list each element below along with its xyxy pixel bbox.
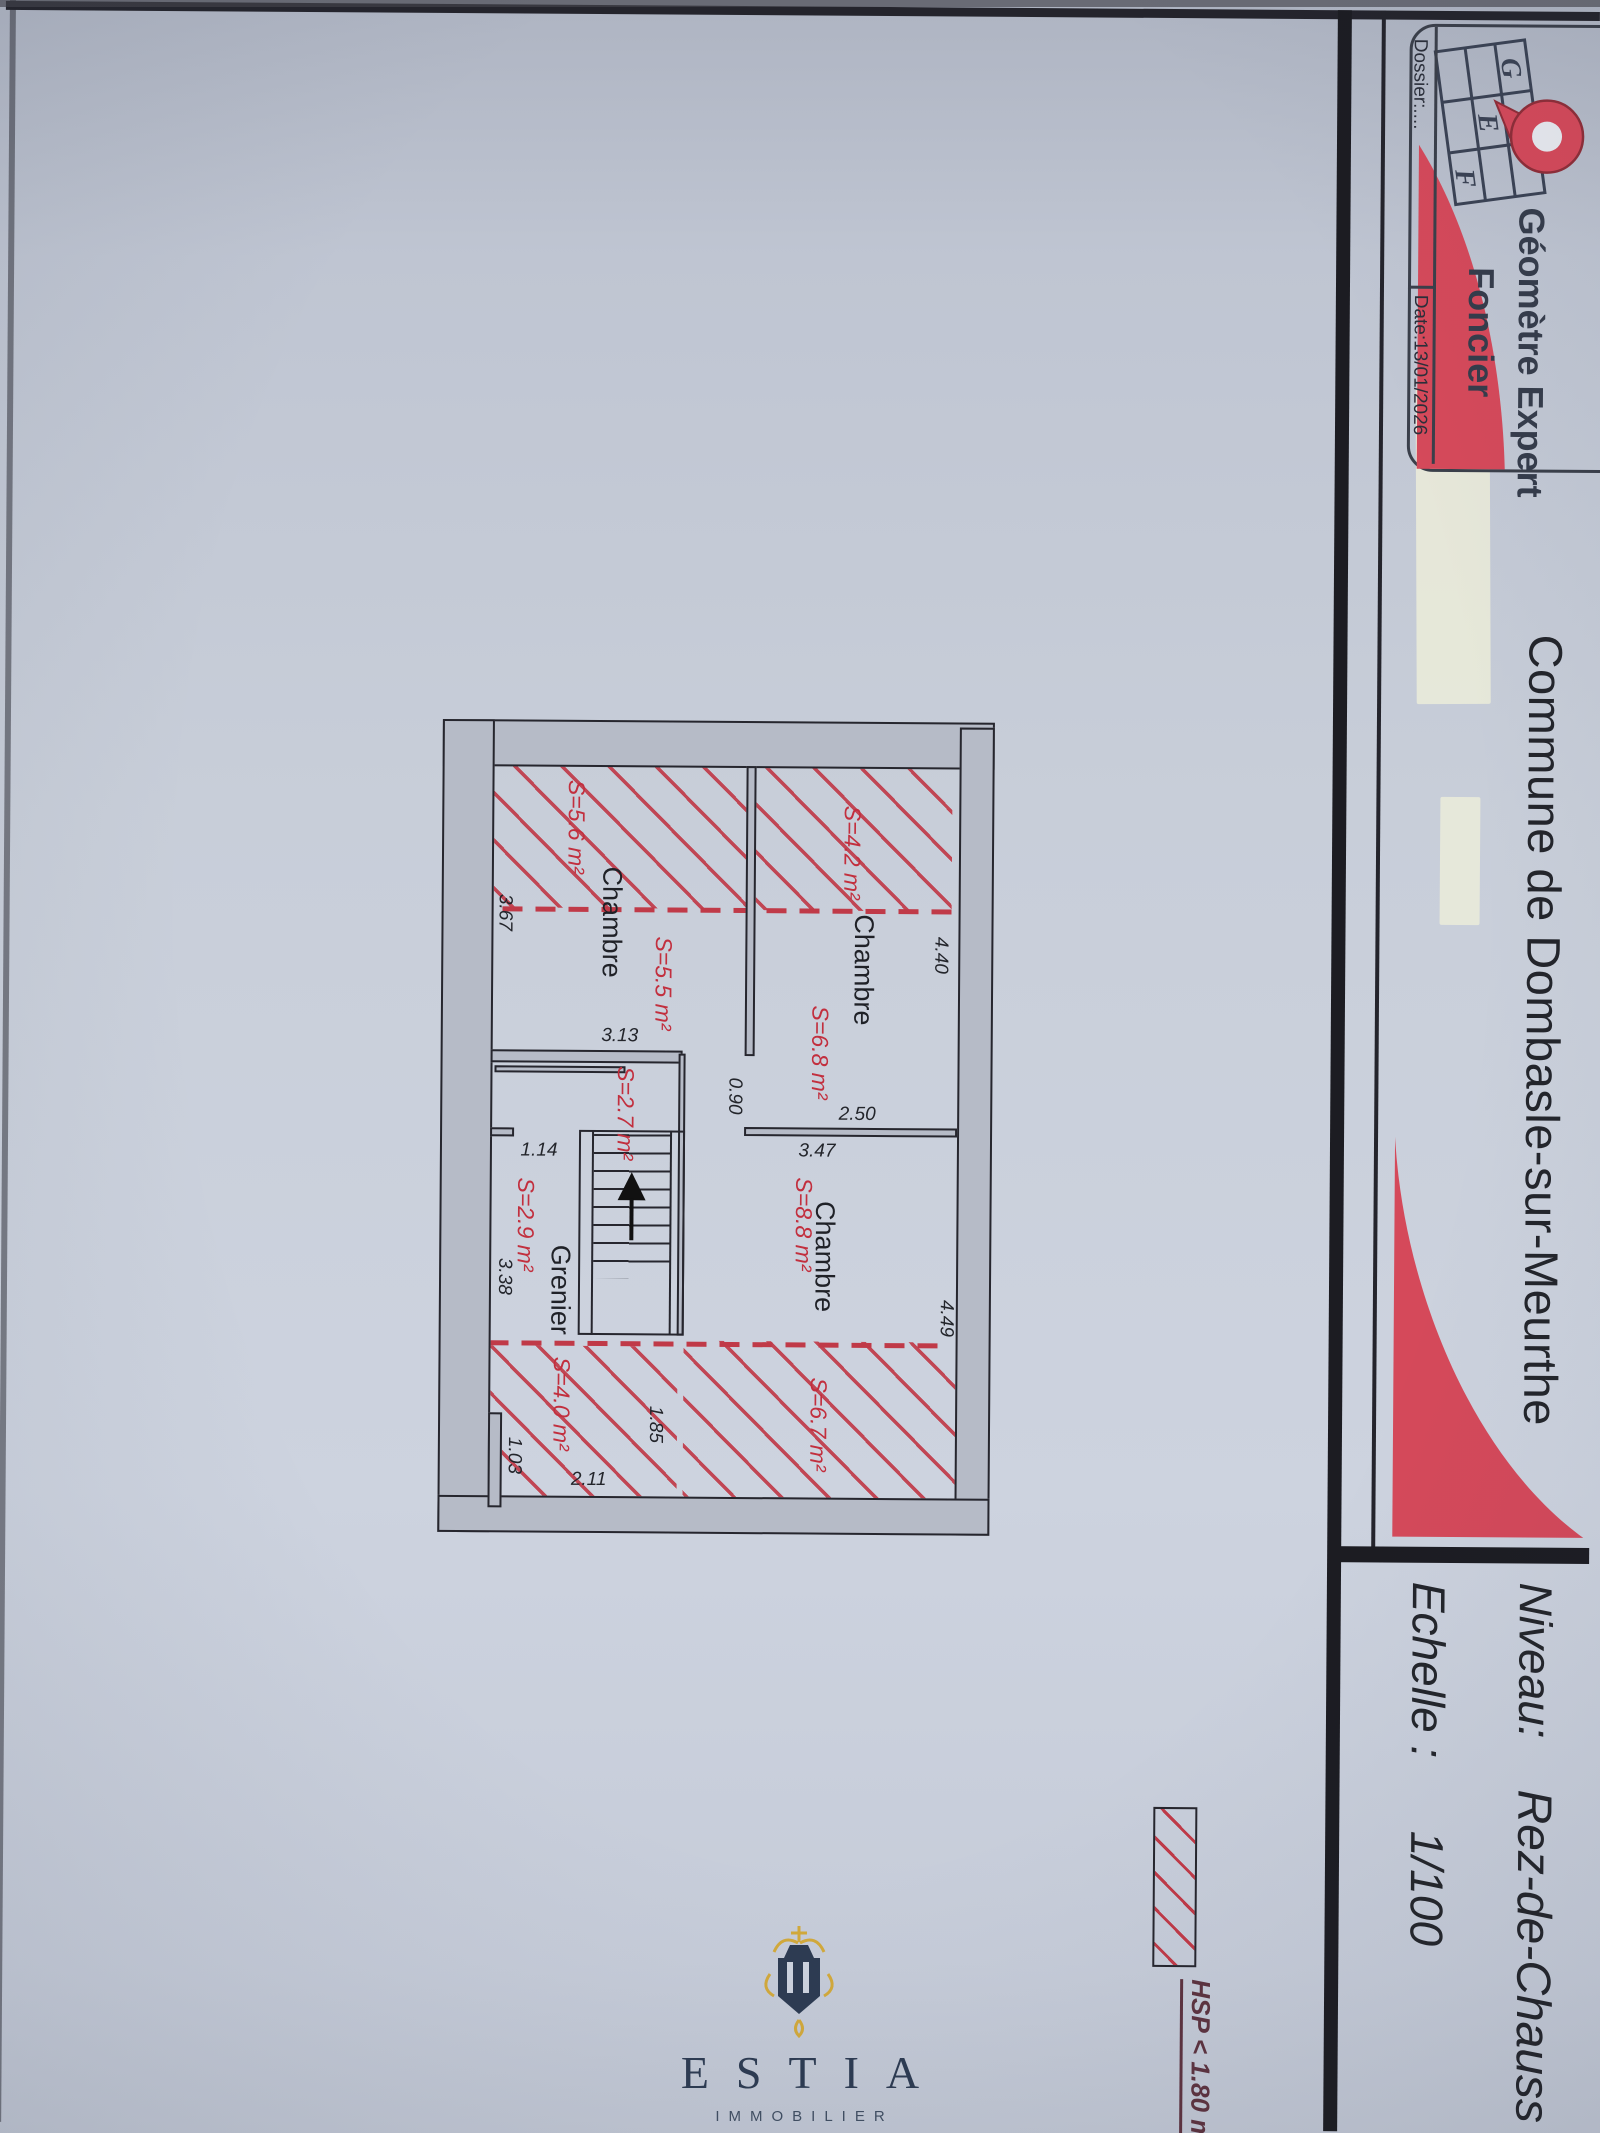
dossier-label: Dossier:.... (1408, 39, 1431, 130)
redaction-tape (1440, 797, 1481, 925)
area-label: S=6.8 m² (806, 1006, 834, 1100)
dimension-label: 4.40 (929, 937, 951, 974)
dimension-label: 3.13 (601, 1025, 638, 1047)
wall-exterior-left (443, 719, 995, 770)
echelle-value: 1/100 (1399, 1831, 1454, 1946)
date-label: Date:13/01/2026 (1408, 295, 1431, 436)
estia-subtitle: IMMOBILIER (706, 2108, 893, 2125)
brand-line2: Foncier (1459, 267, 1502, 397)
wall-partition (491, 1049, 683, 1063)
area-label: S=4.2 m² (838, 806, 866, 900)
dimension-label: 1.85 (644, 1406, 666, 1443)
estia-lantern-icon (760, 1922, 838, 2040)
stair-direction-arrow (618, 1172, 646, 1200)
floor-plan: Chambre Chambre Chambre Grenier S=5.6 m²… (437, 719, 995, 1536)
gef-letter-g: G (1494, 56, 1527, 80)
gef-letter-f: F (1448, 166, 1481, 190)
room-label: Grenier (544, 1245, 576, 1335)
wall-partition (745, 766, 757, 1056)
dimension-label: 3.67 (493, 894, 515, 931)
area-label: S=5.6 m² (562, 780, 590, 874)
wall-exterior-bottom (437, 719, 495, 1532)
legend-hsp-note: HSP < 1.80 m (1179, 1979, 1216, 2133)
brand-line1: Géomètre Expert (1509, 207, 1553, 497)
location-pin-icon (1485, 91, 1594, 182)
dimension-label: 1.14 (520, 1139, 557, 1161)
page-title: Commune de Dombasle-sur-Meurthe (1513, 634, 1574, 1426)
floorplan-document: Commune de Dombasle-sur-Meurthe G E F (0, 0, 1600, 2133)
date-divider (1408, 286, 1436, 289)
wall-partition (494, 1065, 625, 1073)
area-label: S=2.9 m² (512, 1177, 540, 1271)
echelle-label: Echelle : (1401, 1582, 1456, 1759)
area-label: S=6.7 m² (804, 1377, 832, 1471)
wall-stub (490, 1127, 514, 1136)
dimension-label: 2.50 (839, 1104, 876, 1126)
dimension-label: 1.03 (503, 1437, 525, 1474)
dimension-label: 4.49 (935, 1300, 957, 1337)
titlebar-thin-rule (1371, 10, 1386, 1555)
room-label: Chambre (596, 866, 628, 977)
room-label: Chambre (847, 914, 879, 1025)
dimension-label: 0.90 (723, 1077, 745, 1114)
wall-exterior-right (437, 1495, 989, 1536)
niveau-label: Niveau: (1508, 1582, 1563, 1738)
area-label: S=8.8 m² (790, 1177, 818, 1271)
titlebar-main-rule (1323, 10, 1352, 2131)
scanned-floorplan-photo: Commune de Dombasle-sur-Meurthe G E F (0, 0, 1600, 2133)
photo-edge-shadow (0, 0, 1600, 7)
dimension-label: 3.47 (798, 1140, 835, 1162)
legend-hatch-swatch (1152, 1807, 1197, 1967)
wall-exterior-top (954, 728, 995, 1536)
area-label: S=4.0 m² (547, 1357, 575, 1451)
niveau-value: Rez-de-Chauss (1504, 1789, 1561, 2123)
wall-step (487, 1412, 502, 1507)
stair-direction-arrow-shaft (629, 1198, 633, 1240)
area-label: S=5.5 m² (649, 936, 677, 1030)
dimension-label: 3.38 (493, 1258, 515, 1295)
frame-bottom-border (0, 0, 16, 2122)
estia-wordmark: ESTIA (654, 2046, 946, 2099)
wall-partition (744, 1127, 957, 1137)
area-label: S=2.7 m² (611, 1066, 639, 1160)
dimension-label: 2.11 (571, 1469, 607, 1491)
